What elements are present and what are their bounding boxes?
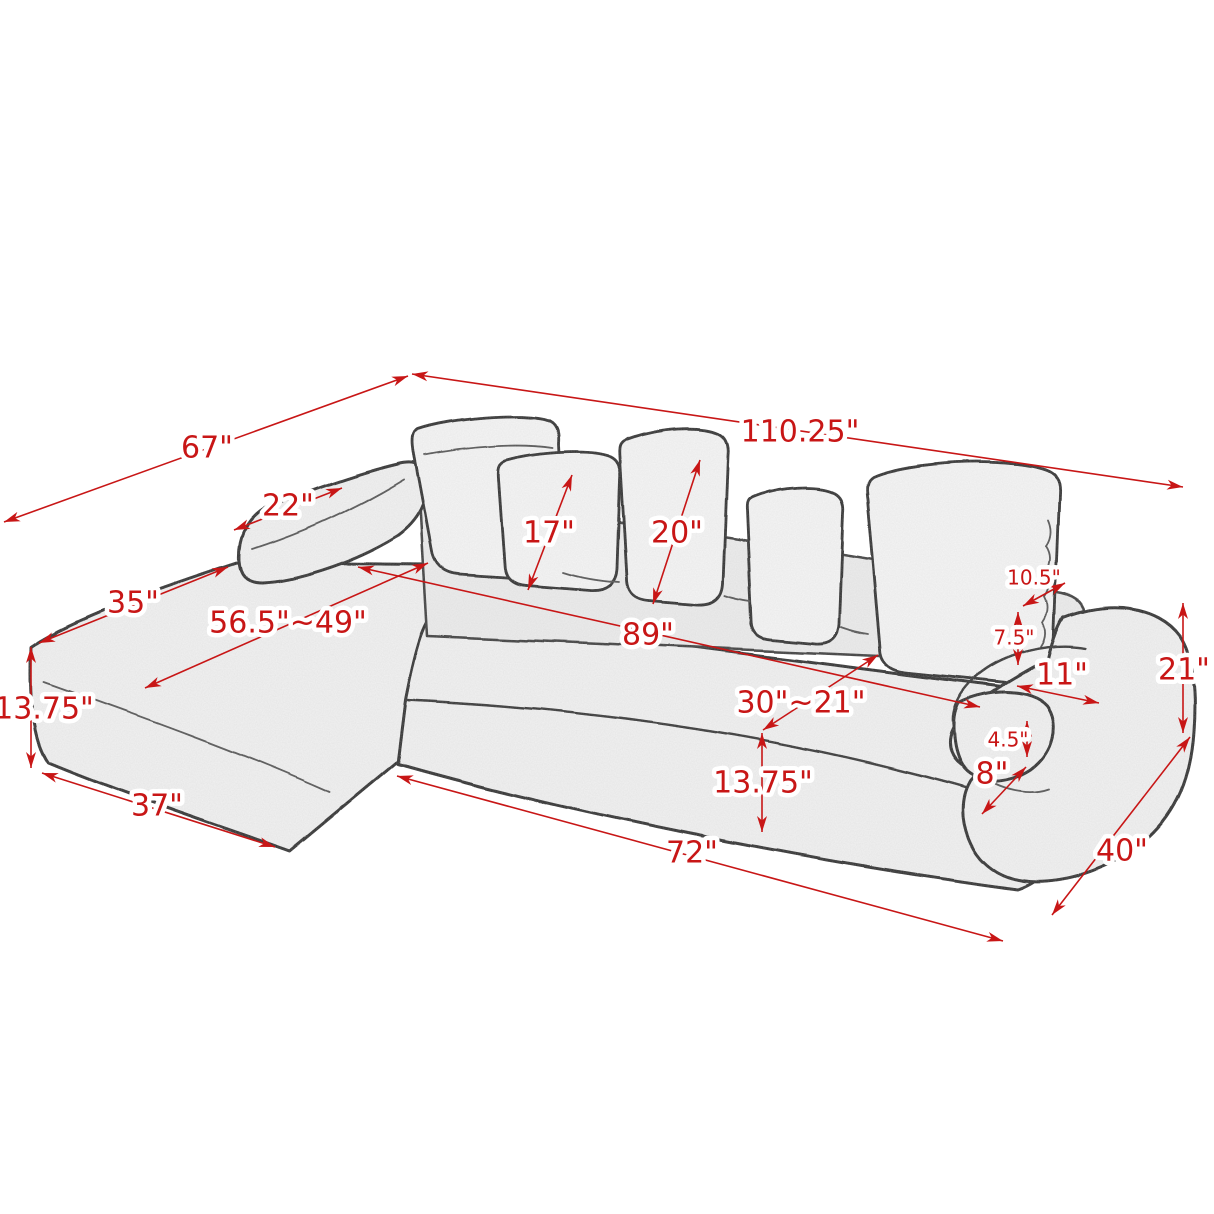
dim-back-height-label: 21" [1158,653,1210,688]
pillow [747,488,843,643]
dim-backrest-above-arm-label: 7.5" [993,626,1034,650]
dim-sofa-bottom-width-label: 72" [666,836,718,871]
dim-interior-seat-width-label: 89" [622,618,674,653]
dim-right-arm-width-label: 11" [1036,658,1088,693]
dimension-diagram: 110.25"67"22"35"56.5"~49"17"20"89"10.5"7… [0,0,1214,1214]
dim-overall-depth-label: 67" [181,431,233,466]
dim-seat-height-label: 13.75" [713,766,813,801]
dim-chaise-bottom-width-label: 37" [131,789,183,824]
dim-left-arm-length-label: 22" [262,489,314,524]
dim-arm-roll-depth-label: 8" [976,757,1009,792]
dim-arm-roll-height-label: 4.5" [987,728,1028,752]
dim-seat-depth-range-label: 30"~21" [736,686,865,721]
dim-chaise-seat-height-label: 13.75" [0,692,94,727]
dim-chaise-seat-depth-label: 56.5"~49" [209,606,367,641]
dim-large-pillow-height-label: 20" [651,516,703,551]
dim-arm-top-depth-label: 10.5" [1007,566,1061,590]
dim-sofa-side-depth-label: 40" [1096,834,1148,869]
sofa-illustration [30,417,1194,889]
dim-chaise-front-width-label: 35" [107,586,159,621]
sofa-dimension-svg: 110.25"67"22"35"56.5"~49"17"20"89"10.5"7… [0,0,1214,1214]
dim-small-pillow-height-label: 17" [523,516,575,551]
dim-overall-width-label: 110.25" [741,415,860,450]
